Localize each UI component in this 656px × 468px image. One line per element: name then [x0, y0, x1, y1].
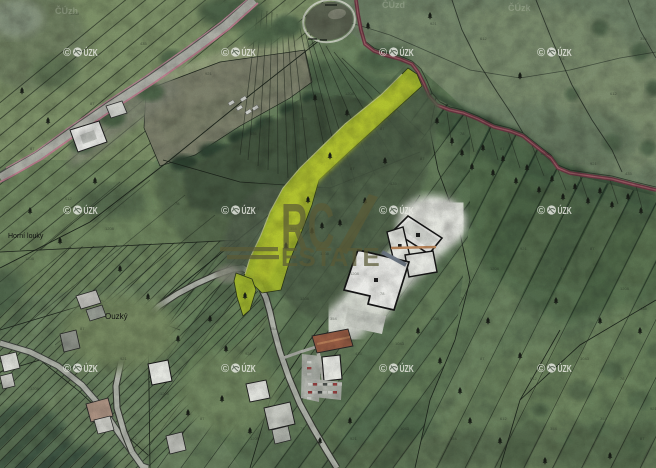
svg-text:ESTATE: ESTATE: [281, 242, 380, 272]
svg-text:©: ©: [379, 205, 387, 217]
svg-text:ÚZK: ÚZK: [400, 361, 415, 374]
svg-text:©: ©: [379, 47, 387, 59]
svg-text:Horní louky: Horní louky: [8, 233, 44, 240]
svg-text:ÚZK: ÚZK: [242, 361, 257, 374]
svg-text:ÚZK: ÚZK: [400, 203, 415, 216]
svg-text:ÚZK: ÚZK: [242, 45, 257, 58]
svg-text:ÚZK: ÚZK: [400, 45, 415, 58]
svg-text:ČÚzd: ČÚzd: [382, 0, 405, 10]
svg-text:Ouzký: Ouzký: [105, 312, 128, 321]
svg-text:©: ©: [537, 205, 545, 217]
svg-text:ÚZK: ÚZK: [84, 361, 99, 374]
svg-text:©: ©: [63, 363, 71, 375]
svg-text:ÚZK: ÚZK: [558, 45, 573, 58]
svg-text:ÚZK: ÚZK: [84, 45, 99, 58]
svg-text:ÚZK: ÚZK: [558, 203, 573, 216]
svg-text:©: ©: [537, 363, 545, 375]
svg-text:©: ©: [221, 47, 229, 59]
svg-text:©: ©: [221, 205, 229, 217]
svg-text:ÚZK: ÚZK: [242, 203, 257, 216]
svg-text:©: ©: [537, 47, 545, 59]
svg-text:©: ©: [63, 205, 71, 217]
svg-text:©: ©: [63, 47, 71, 59]
svg-text:©: ©: [221, 363, 229, 375]
svg-text:ČÚzh: ČÚzh: [55, 5, 78, 16]
svg-text:©: ©: [379, 363, 387, 375]
svg-text:ČÚzk: ČÚzk: [508, 2, 531, 13]
svg-text:ÚZK: ÚZK: [84, 203, 99, 216]
svg-text:ÚZK: ÚZK: [558, 361, 573, 374]
